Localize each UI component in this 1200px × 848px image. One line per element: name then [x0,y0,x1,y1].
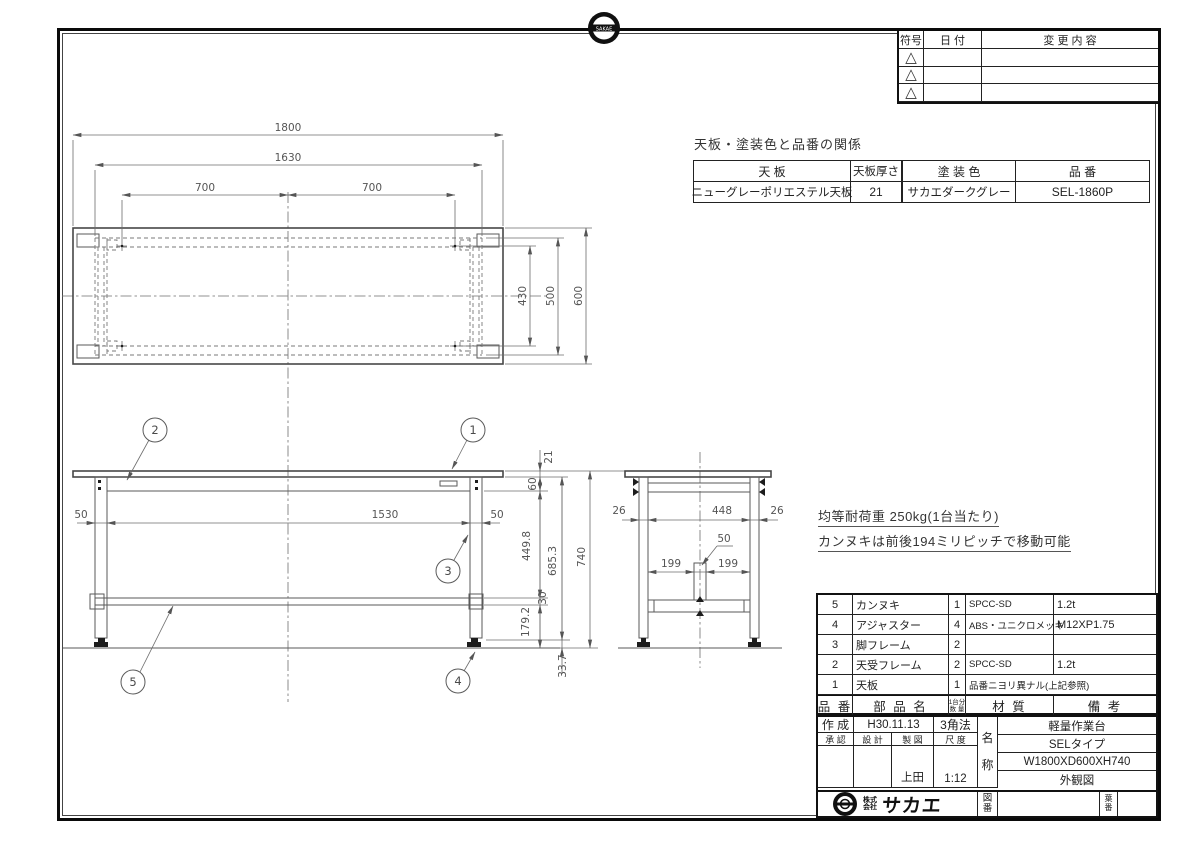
part-row-material [966,635,1054,655]
sheet-no-label: 葉 番 [1100,792,1118,816]
finish-table: 天 板 天板厚さ 塗 装 色 品 番 ニューグレーポリエステル天板 21 サカエ… [693,160,1150,203]
dim-front-total-height: 740 [576,547,588,567]
note-crossbar-pitch: カンヌキは前後194ミリピッチで移動可能 [818,531,1071,552]
notes: 均等耐荷重 250kg(1台当たり) カンヌキは前後194ミリピッチで移動可能 [818,506,1071,556]
dim-side-inner: 448 [712,505,732,517]
name-label-char2: 称 [981,759,993,772]
dim-front-foot-height: 33.7 [557,654,569,677]
dim-front-bar-height: 30 [537,591,549,604]
revision-row-marker: △ [899,67,924,85]
logo-band: 株式 会社 サカエ 図 番 葉 番 [816,790,1158,818]
designed-label: 設 計 [854,733,892,746]
scale-value: 1:12 [934,746,978,788]
part-row-no: 3 [818,635,853,655]
approved-signature [818,746,854,788]
approved-label: 承 認 [818,733,854,746]
revision-table: 符号 日 付 変 更 内 容 △ △ △ [897,31,1158,104]
drawing-type: 外観図 [998,771,1156,788]
company-prefix-line1: 株式 [863,797,877,804]
parts-list-table: 5 カンヌキ 1 SPCC-SD 1.2t 4 アジャスター 4 ABS・ユニク… [816,593,1158,715]
part-row-no: 4 [818,615,853,635]
drawing-no-value [998,792,1100,816]
product-type: SELタイプ [998,735,1156,753]
part-row-material: ABS・ユニクロメッキ [966,615,1054,635]
drafter-name: 上田 [892,746,934,788]
front-view [63,471,560,648]
finish-thickness-value: 21 [851,182,903,202]
dim-front-leg-lower: 179.2 [520,607,532,637]
revision-header-content: 変 更 内 容 [982,31,1158,49]
part-row-remarks [1054,635,1156,655]
dim-front-left-leg: 50 [74,509,87,521]
finish-table-title: 天板・塗装色と品番の関係 [694,134,862,153]
center-lines [62,192,700,702]
dim-side-left: 26 [612,505,626,517]
dim-side-bar-width: 50 [717,533,730,545]
dim-side-right: 26 [770,505,784,517]
revision-row-content [982,84,1158,102]
brand-logotype: サカエ [881,791,944,818]
side-view-dimensions: 26 448 26 199 199 50 [612,505,784,572]
part-row-qty: 1 [949,675,966,695]
created-label: 作 成 [818,717,854,733]
finish-top-value: ニューグレーポリエステル天板 [694,182,851,202]
part-row-qty: 1 [949,595,966,615]
balloon-2: 2 [151,423,158,437]
dim-top-pitch-right: 700 [362,182,382,194]
dim-top-frame-width: 1630 [275,152,302,164]
created-date: H30.11.13 [854,717,934,733]
triangle-icon: △ [905,67,917,82]
dim-top-pitch-left: 700 [195,182,215,194]
adjuster-feet [94,638,481,647]
parts-header-qty-top: 1台分 [949,699,966,706]
title-block: 作 成 H30.11.13 3角法 承 認 設 計 製 図 尺 度 上田 1:1… [816,715,1158,790]
revision-row-date [924,67,982,85]
front-view-dimensions: 50 1530 50 21 60 449.8 30 179.2 685.3 74… [74,450,628,678]
stamp-text: SAKAE [596,27,612,33]
parts-header-qty: 1台分 数 量 [949,695,966,715]
part-row-name: 天板 [853,675,949,695]
approval-stamp: SAKAE [588,12,620,44]
part-row-material: 品番ニヨリ異ナル(上記参照) [966,675,1156,695]
scale-label: 尺 度 [934,733,978,746]
part-row-no: 5 [818,595,853,615]
dim-front-rail-height: 60 [527,477,539,490]
drawing-no-label: 図 番 [978,792,998,816]
product-name: 軽量作業台 [998,717,1156,735]
dim-front-top-thickness: 21 [543,450,555,463]
name-label: 名 称 [978,717,998,788]
company-prefix: 株式 会社 [863,797,877,811]
part-row-no: 1 [818,675,853,695]
triangle-icon: △ [905,85,917,100]
parts-header-name: 部 品 名 [853,695,949,715]
finish-partno-value: SEL-1860P [1016,182,1149,202]
part-row-remarks: 1.2t [1054,655,1156,675]
dim-front-leg-upper: 449.8 [521,531,533,561]
balloon-3: 3 [444,564,451,578]
sheet-no-value [1118,792,1156,816]
company-emblem-icon [832,791,858,817]
part-row-name: 脚フレーム [853,635,949,655]
note-load-capacity: 均等耐荷重 250kg(1台当たり) [818,506,999,527]
part-row-qty: 2 [949,635,966,655]
finish-header-thickness: 天板厚さ [851,161,903,182]
part-row-name: カンヌキ [853,595,949,615]
drawing-no-char2: 番 [983,804,993,814]
revision-row-content [982,49,1158,67]
parts-header-qty-bottom: 数 量 [950,706,965,713]
projection-method: 3角法 [934,717,978,733]
revision-row-date [924,84,982,102]
sheet-no-char2: 番 [1105,804,1113,813]
adjuster-feet-side [637,638,761,647]
dim-side-pitch-right: 199 [718,558,738,570]
finish-header-partno: 品 番 [1016,161,1149,182]
label-plate [440,481,457,486]
dim-front-inner: 1530 [372,509,399,521]
finish-color-value: サカエダークグレー [903,182,1016,202]
part-row-remarks: 1.2t [1054,595,1156,615]
designed-signature [854,746,892,788]
revision-header-date: 日 付 [924,31,982,49]
dim-side-pitch-left: 199 [661,558,681,570]
dim-front-under-height: 685.3 [547,546,559,576]
dim-top-depth: 600 [573,286,585,306]
revision-header-symbol: 符号 [899,31,924,49]
dim-front-right-leg: 50 [490,509,503,521]
drawing-sheet: { "stamp": { "text": "SAKAE" }, "revisio… [0,0,1200,848]
dim-top-width: 1800 [275,122,302,134]
balloon-4: 4 [454,674,461,688]
part-row-name: アジャスター [853,615,949,635]
finish-header-top: 天 板 [694,161,851,182]
dim-top-frame-depth: 500 [545,286,557,306]
parts-header-remarks: 備 考 [1054,695,1156,715]
revision-row-marker: △ [899,84,924,102]
drafted-label: 製 図 [892,733,934,746]
finish-header-color: 塗 装 色 [903,161,1016,182]
product-size: W1800XD600XH740 [998,753,1156,771]
revision-row-marker: △ [899,49,924,67]
revision-row-content [982,67,1158,85]
dim-top-bolt-span: 430 [517,286,529,306]
part-row-material: SPCC-SD [966,595,1054,615]
part-row-remarks: M12XP1.75 [1054,615,1156,635]
parts-header-material: 材 質 [966,695,1054,715]
top-view-dimensions: 1800 1630 700 700 430 500 600 [73,122,592,364]
part-row-qty: 2 [949,655,966,675]
balloon-5: 5 [129,675,136,689]
part-row-qty: 4 [949,615,966,635]
triangle-icon: △ [905,50,917,65]
part-row-material: SPCC-SD [966,655,1054,675]
company-logo: 株式 会社 サカエ [818,792,978,816]
parts-header-no: 品 番 [818,695,853,715]
part-balloons: 1 2 3 4 5 [121,418,485,694]
company-prefix-line2: 会社 [863,804,877,811]
balloon-1: 1 [469,423,476,437]
part-row-name: 天受フレーム [853,655,949,675]
name-label-char1: 名 [981,732,993,745]
revision-row-date [924,49,982,67]
part-row-no: 2 [818,655,853,675]
